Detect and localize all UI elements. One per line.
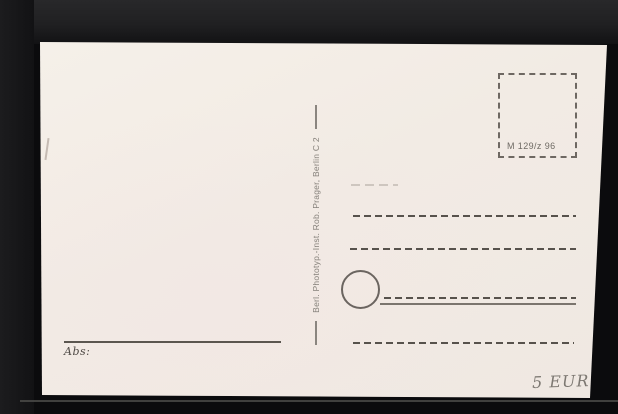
imprint-end-dash-right xyxy=(315,105,317,129)
scan-top-strip xyxy=(0,0,618,44)
scan-background: Berl. Phototyp.-Inst. Rob. Prager, Berli… xyxy=(0,0,618,414)
paper-scratch-mark xyxy=(44,138,49,160)
stamp-box: M 129/z 96 xyxy=(498,73,577,158)
scan-left-strip xyxy=(0,0,34,414)
imprint-end-dash-left xyxy=(315,321,317,345)
publisher-imprint: Berl. Phototyp.-Inst. Rob. Prager, Berli… xyxy=(304,95,328,355)
publisher-imprint-text: Berl. Phototyp.-Inst. Rob. Prager, Berli… xyxy=(311,137,321,313)
address-line-2 xyxy=(350,248,576,250)
postmark-circle xyxy=(341,270,380,309)
price-annotation: 5 EUR xyxy=(532,371,590,392)
sender-line xyxy=(64,341,281,343)
address-line-3-dashed xyxy=(384,297,576,299)
scan-edge-line xyxy=(20,400,618,402)
faint-dash-mark xyxy=(351,184,398,186)
postcard-back: Berl. Phototyp.-Inst. Rob. Prager, Berli… xyxy=(40,42,607,400)
address-line-1 xyxy=(353,215,576,217)
address-line-3-solid xyxy=(380,303,576,305)
stamp-box-code: M 129/z 96 xyxy=(507,141,556,151)
address-line-4 xyxy=(353,342,574,344)
sender-label: Abs: xyxy=(64,345,90,358)
